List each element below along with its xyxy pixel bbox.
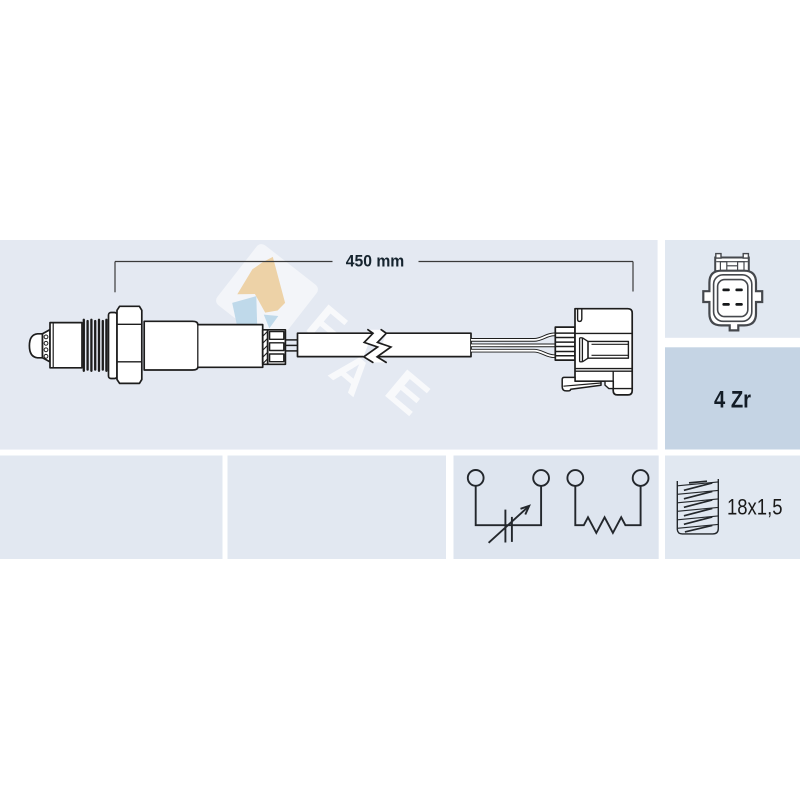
svg-text:450 mm: 450 mm <box>346 252 405 271</box>
svg-text:18x1,5: 18x1,5 <box>727 495 783 520</box>
svg-text:4 Zr: 4 Zr <box>714 387 751 414</box>
